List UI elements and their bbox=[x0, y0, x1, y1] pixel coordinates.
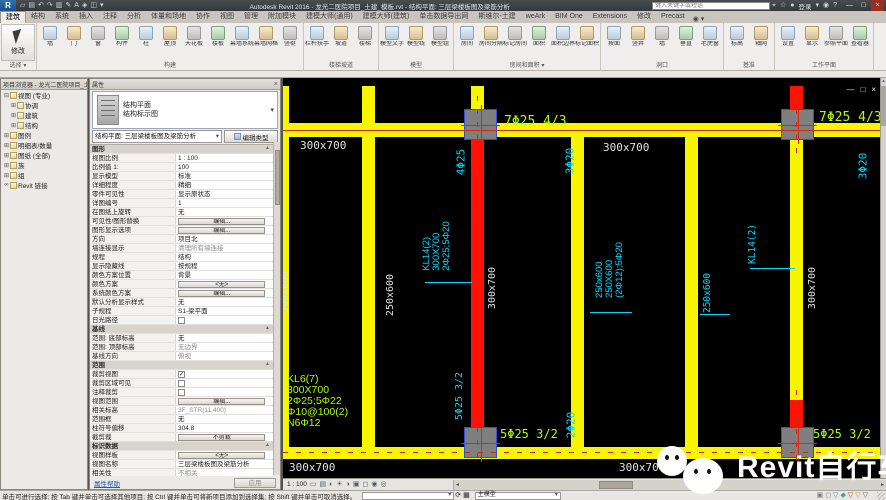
ribbon-button-窗[interactable]: 窗 bbox=[86, 24, 110, 61]
ribbon-button-竖井[interactable]: 竖井 bbox=[626, 24, 650, 61]
minimize-icon[interactable]: — bbox=[843, 0, 856, 11]
ribbon-button-参照平面[interactable]: 参照平面 bbox=[824, 24, 848, 61]
beam[interactable] bbox=[790, 140, 803, 400]
status-mid-icons: ⟳▦ bbox=[454, 491, 471, 500]
tool-icon bbox=[433, 26, 447, 40]
tab-单击数据导出网[interactable]: 单击数据导出网 bbox=[414, 11, 473, 23]
property-row-零件可见性[interactable]: 零件可见性显示原状态 bbox=[90, 190, 273, 199]
cad-label: 3Φ20 bbox=[564, 148, 575, 175]
vertical-scrollbar[interactable]: ▲ bbox=[880, 78, 886, 478]
property-row-相关标高[interactable]: 相关标高3F_STR(11.400) bbox=[90, 406, 273, 415]
tab-视图[interactable]: 视图 bbox=[215, 11, 239, 23]
tree-item-icon bbox=[10, 182, 17, 189]
tree-item-图例[interactable]: ⊞图例 bbox=[1, 130, 87, 140]
type-name-label: 结构标示图 bbox=[123, 110, 158, 119]
close-icon[interactable]: × bbox=[871, 0, 884, 11]
cad-label: 7Φ25 4/3 bbox=[504, 115, 567, 129]
tool-icon bbox=[679, 26, 693, 40]
property-row-颜色方案[interactable]: 颜色方案<无> bbox=[90, 280, 273, 289]
tab-结构[interactable]: 结构 bbox=[26, 11, 50, 23]
restore-icon[interactable]: □ bbox=[857, 0, 870, 11]
property-row-裁剪视图[interactable]: 裁剪视图✓ bbox=[90, 370, 273, 379]
section-header-标识数据[interactable]: 标识数据▲ bbox=[90, 442, 273, 451]
status-hint-text: 单击可进行选择; 按 Tab 键并单击可选择其他项目; 按 Ctrl 键并单击可… bbox=[0, 491, 356, 500]
property-row-视图样板[interactable]: 视图样板<无> bbox=[90, 451, 273, 460]
sign-in-icon[interactable]: ● bbox=[790, 2, 794, 9]
edit-type-icon bbox=[234, 133, 241, 140]
design-options-combo[interactable]: 主模型▾ bbox=[475, 492, 561, 500]
property-row-范围: 底部标高[interactable]: 范围: 底部标高无 bbox=[90, 334, 273, 343]
cad-label: 3Φ20 bbox=[857, 153, 868, 180]
tool-icon bbox=[556, 26, 570, 40]
grid-line bbox=[283, 130, 880, 131]
tool-icon bbox=[385, 26, 399, 40]
tree-item-icon bbox=[10, 132, 17, 139]
tab-管理[interactable]: 管理 bbox=[239, 11, 263, 23]
exchange-icon[interactable]: ◉ bbox=[823, 2, 829, 9]
property-row-方向[interactable]: 方向项目北 bbox=[90, 235, 273, 244]
cad-label: 250x600 bbox=[386, 274, 396, 316]
reveal-hidden-icon[interactable]: ◎ bbox=[380, 479, 386, 490]
options-bar bbox=[0, 71, 886, 78]
section-icon[interactable]: ◫ bbox=[90, 0, 97, 11]
panel-label: 楼梯坡道 bbox=[304, 61, 378, 71]
titlebar-icons-2: ▾◉? bbox=[813, 0, 839, 11]
property-button[interactable]: 编辑... bbox=[178, 218, 265, 225]
help-search-input[interactable]: 键入关键字或短语 bbox=[652, 2, 770, 10]
ribbon-button-查看器[interactable]: 查看器 bbox=[848, 24, 872, 61]
cad-label: 4Φ25 bbox=[455, 149, 466, 176]
cad-label: 300x700 bbox=[300, 140, 346, 151]
ribbon-button-墙[interactable]: 墙 bbox=[650, 24, 674, 61]
expander-icon: ⊞ bbox=[3, 132, 10, 139]
property-button[interactable]: <无> bbox=[178, 452, 265, 459]
type-preview-image bbox=[97, 95, 119, 125]
ribbon-button-轴网[interactable]: 轴网 bbox=[749, 24, 773, 61]
column[interactable] bbox=[464, 109, 497, 140]
show-crop-icon[interactable]: ◻ bbox=[363, 479, 369, 490]
detail-level-icon[interactable]: ▤ bbox=[320, 479, 327, 490]
tab-斯维尔-土建[interactable]: 斯维尔-土建 bbox=[473, 11, 520, 23]
tab-修改[interactable]: 修改 bbox=[632, 11, 656, 23]
cad-label: 300x700 bbox=[289, 462, 335, 473]
property-row-日光路径[interactable]: 日光路径 bbox=[90, 316, 273, 325]
open-icon[interactable]: ▱ bbox=[20, 0, 25, 11]
ribbon-panel-基准: 标高轴网基准 bbox=[724, 23, 775, 71]
edit-type-button[interactable]: 编辑类型 bbox=[224, 130, 278, 143]
expander-icon: ⊞ bbox=[10, 112, 17, 119]
view-restore-icon[interactable]: □ bbox=[860, 85, 865, 94]
properties-scrollbar[interactable] bbox=[273, 142, 280, 475]
property-button[interactable]: 不剪裁 bbox=[178, 434, 265, 441]
main-area: 项目浏览器 - 龙光二医院项目_土建_模板.rvt × ⊟视图 (专业)⊞协调⊞… bbox=[0, 78, 886, 490]
ribbon-button-面积[interactable]: 面积 bbox=[527, 24, 551, 61]
ribbon-button-构件[interactable]: 构件 bbox=[110, 24, 134, 61]
view-close-icon[interactable]: × bbox=[871, 85, 876, 94]
panel-label: 模型 bbox=[379, 61, 453, 71]
tool-icon bbox=[334, 26, 348, 40]
tab-Extensions[interactable]: Extensions bbox=[588, 11, 632, 23]
tree-item-Revit 链接[interactable]: ∞Revit 链接 bbox=[1, 180, 87, 190]
tool-icon bbox=[829, 26, 843, 40]
beam[interactable] bbox=[685, 137, 698, 459]
account-caret-icon[interactable]: ▾ bbox=[815, 2, 819, 9]
tool-icon bbox=[508, 26, 522, 40]
revit-window: R ▱▤↶↷▥✎A◈◫▾ Autodesk Revit 2016 - 龙光二医院… bbox=[0, 0, 886, 500]
property-row-子规程[interactable]: 子规程S1-梁平面 bbox=[90, 307, 273, 316]
grid-line bbox=[796, 96, 797, 156]
select-pinned-icon[interactable]: ▽ bbox=[855, 491, 860, 500]
expander-icon: ⊞ bbox=[10, 122, 17, 129]
project-browser-tree: ⊟视图 (专业)⊞协调⊞建筑⊞结构⊞图例⊞明细表/数量⊞图纸 (全部)⊞族⊞组∞… bbox=[1, 90, 87, 190]
cad-label: 5Φ25 3/2 bbox=[813, 428, 871, 440]
checkbox[interactable] bbox=[178, 317, 185, 324]
leader-line bbox=[750, 268, 795, 269]
tree-item-icon bbox=[10, 172, 17, 179]
property-row-范围框[interactable]: 范围框无 bbox=[90, 415, 273, 424]
cad-label: 300x700 bbox=[603, 142, 649, 153]
ribbon-button-竖梃[interactable]: 竖梃 bbox=[278, 24, 302, 61]
property-row-截剪裁[interactable]: 截剪裁不剪裁 bbox=[90, 433, 273, 442]
cad-label: 7Φ25 4/3 bbox=[819, 111, 880, 125]
filter-icon[interactable]: ▽ bbox=[863, 491, 868, 500]
tool-icon bbox=[187, 26, 201, 40]
tab-建模大师(通用)[interactable]: 建模大师(通用) bbox=[301, 11, 358, 23]
scroll-left-icon[interactable]: ◄ bbox=[455, 480, 460, 490]
worksets-icon[interactable]: ⟳ bbox=[455, 492, 461, 499]
ribbon-button-模型文字[interactable]: 模型文字 bbox=[380, 24, 404, 61]
ribbon-button-天花板[interactable]: 天花板 bbox=[182, 24, 206, 61]
properties-header[interactable]: 属性 × bbox=[90, 79, 280, 90]
ribbon-button-屋顶[interactable]: 屋顶 bbox=[158, 24, 182, 61]
search-binoculars-icon[interactable]: ⌖ bbox=[772, 2, 776, 9]
tool-icon bbox=[460, 26, 474, 40]
section-header-图形[interactable]: 图形▲ bbox=[90, 145, 273, 154]
checkbox[interactable] bbox=[178, 389, 185, 396]
expander-icon: ⊞ bbox=[3, 162, 10, 169]
sign-in-label[interactable]: 登录 bbox=[798, 1, 811, 11]
tool-icon bbox=[211, 26, 225, 40]
hide-elements-icon[interactable]: ◉ bbox=[371, 479, 377, 490]
tab-注释[interactable]: 注释 bbox=[98, 11, 122, 23]
leader-line bbox=[700, 314, 730, 315]
properties-help-link[interactable]: 属性帮助 bbox=[94, 478, 120, 488]
panel-label: 洞口 bbox=[601, 61, 723, 71]
tree-item-icon bbox=[17, 122, 24, 129]
cad-label: KL14(2) bbox=[748, 224, 758, 264]
expander-icon: ∞ bbox=[3, 182, 10, 188]
ribbon-button-模型线[interactable]: 模型线 bbox=[404, 24, 428, 61]
cad-label: KL14(2)300X7002Φ25;5Φ20 bbox=[422, 221, 452, 271]
tab-BIM One[interactable]: BIM One bbox=[550, 11, 588, 23]
ribbon-panel-工作平面: 设置显示参照平面查看器工作平面 bbox=[775, 23, 874, 71]
section-header-范围[interactable]: 范围▲ bbox=[90, 361, 273, 370]
cad-label: 300x700 bbox=[808, 267, 818, 309]
tool-icon bbox=[67, 26, 81, 40]
property-row-视图比例[interactable]: 视图比例1 : 100 bbox=[90, 154, 273, 163]
panel-label: 房间和面积 ▾ bbox=[454, 61, 600, 71]
modify-button[interactable]: 修改 bbox=[1, 24, 35, 61]
property-row-图形显示选项[interactable]: 图形显示选项编辑... bbox=[90, 226, 273, 235]
select-links-icon[interactable]: ◆ bbox=[840, 491, 845, 500]
3d-view-icon[interactable]: ◈ bbox=[82, 0, 87, 11]
modify-pencil-icon[interactable]: ✎ bbox=[65, 0, 71, 11]
worksets-combo[interactable]: ▾ bbox=[362, 492, 454, 500]
property-row-系统颜色方案[interactable]: 系统颜色方案编辑... bbox=[90, 289, 273, 298]
ribbon: 修改选择 ▾墙门窗构件柱屋顶天花板楼板幕墙系统幕墙网格竖梃构建栏杆扶手坡道楼梯楼… bbox=[0, 23, 886, 71]
edit-type-label: 编辑类型 bbox=[243, 132, 269, 142]
editable-only-icon[interactable]: ▣ bbox=[817, 491, 824, 500]
property-row-在图纸上旋转[interactable]: 在图纸上旋转无 bbox=[90, 208, 273, 217]
select-underlay-icon[interactable]: ▽ bbox=[848, 491, 853, 500]
property-row-视图名称[interactable]: 视图名称三层梁楼板图及梁筋分析 bbox=[90, 460, 273, 469]
ribbon-button-垂直[interactable]: 垂直 bbox=[674, 24, 698, 61]
checkbox[interactable] bbox=[178, 380, 185, 387]
ribbon-button-栏杆扶手[interactable]: 栏杆扶手 bbox=[305, 24, 329, 61]
grid-line bbox=[477, 414, 478, 466]
type-selector[interactable]: 结构平面 结构标示图 ▾ bbox=[92, 91, 278, 129]
tool-icon bbox=[607, 26, 621, 40]
ribbon-button-坡道[interactable]: 坡道 bbox=[329, 24, 353, 61]
ribbon-button-房间[interactable]: 房间 bbox=[455, 24, 479, 61]
ribbon-button-老虎窗[interactable]: 老虎窗 bbox=[698, 24, 722, 61]
tree-item-协调[interactable]: ⊞协调 bbox=[1, 100, 87, 110]
property-row-可见性/图形替换[interactable]: 可见性/图形替换编辑... bbox=[90, 217, 273, 226]
tab-Precast[interactable]: Precast bbox=[656, 11, 690, 23]
wechat-icon-small bbox=[683, 458, 723, 494]
ribbon-button-门[interactable]: 门 bbox=[62, 24, 86, 61]
property-row-详图编号[interactable]: 详图编号1 bbox=[90, 199, 273, 208]
property-row-显示模型[interactable]: 显示模型标准 bbox=[90, 172, 273, 181]
ribbon-button-楼板[interactable]: 楼板 bbox=[206, 24, 230, 61]
quick-access-toolbar: ▱▤↶↷▥✎A◈◫▾ bbox=[16, 0, 107, 11]
ribbon-button-标高[interactable]: 标高 bbox=[725, 24, 749, 61]
ribbon-button-标记面积[interactable]: 标记面积 bbox=[575, 24, 599, 61]
property-row-注释裁剪[interactable]: 注释裁剪 bbox=[90, 388, 273, 397]
close-icon[interactable]: × bbox=[274, 81, 278, 88]
tab-体量和场地[interactable]: 体量和场地 bbox=[146, 11, 191, 23]
project-browser-panel: 项目浏览器 - 龙光二医院项目_土建_模板.rvt × ⊟视图 (专业)⊞协调⊞… bbox=[0, 78, 88, 490]
leader-line bbox=[425, 282, 472, 283]
undo-icon[interactable]: ↶ bbox=[38, 0, 44, 11]
property-button[interactable]: <无> bbox=[178, 281, 265, 288]
property-row-墙连接显示[interactable]: 墙连接显示清理所有墙连接 bbox=[90, 244, 273, 253]
ribbon-button-幕墙网格[interactable]: 幕墙网格 bbox=[254, 24, 278, 61]
tree-item-图纸 (全部)[interactable]: ⊞图纸 (全部) bbox=[1, 150, 87, 160]
crop-view-icon[interactable]: ▣ bbox=[353, 479, 360, 490]
view-window-controls: —□× bbox=[846, 85, 876, 94]
cad-label: 300x700 bbox=[488, 267, 498, 309]
sun-path-icon[interactable]: ☀ bbox=[336, 479, 342, 490]
tool-icon bbox=[730, 26, 744, 40]
property-row-详细程度[interactable]: 详细程度精细 bbox=[90, 181, 273, 190]
tool-icon bbox=[115, 26, 129, 40]
ribbon-panel-选择 ▾: 修改选择 ▾ bbox=[0, 23, 37, 71]
panel-label: 构建 bbox=[37, 61, 303, 71]
text-icon[interactable]: A bbox=[74, 0, 79, 11]
tab-weArk[interactable]: weArk bbox=[521, 11, 550, 23]
property-row-柱符号偏移[interactable]: 柱符号偏移304.8 bbox=[90, 424, 273, 433]
scrollbar-thumb[interactable] bbox=[599, 481, 633, 489]
tab-建筑[interactable]: 建筑 bbox=[0, 11, 26, 23]
tool-icon bbox=[631, 26, 645, 40]
ribbon-button-楼梯[interactable]: 楼梯 bbox=[353, 24, 377, 61]
panel-label: 选择 ▾ bbox=[0, 61, 36, 71]
property-row-颜色方案位置[interactable]: 颜色方案位置背景 bbox=[90, 271, 273, 280]
tab-插入[interactable]: 插入 bbox=[74, 11, 98, 23]
project-browser-header[interactable]: 项目浏览器 - 龙光二医院项目_土建_模板.rvt × bbox=[1, 79, 87, 90]
window-buttons: —□× bbox=[843, 0, 884, 11]
property-button[interactable]: 编辑... bbox=[178, 290, 265, 297]
cursor-icon bbox=[12, 29, 24, 44]
ribbon-button-幕墙系统[interactable]: 幕墙系统 bbox=[230, 24, 254, 61]
cad-label: 250x600250X600(2Φ12);5Φ20 bbox=[595, 242, 625, 298]
tab-options-icon[interactable]: ◉ ▾ bbox=[693, 15, 705, 23]
ribbon-tab-bar: 建筑结构系统插入注释分析体量和场地协作视图管理附加模块建模大师(通用)建模大师(… bbox=[0, 11, 886, 23]
tool-icon bbox=[283, 26, 297, 40]
beam-selected[interactable] bbox=[471, 140, 484, 428]
tool-icon bbox=[484, 26, 498, 40]
cad-label: 300x600 bbox=[283, 271, 291, 313]
section-header-基线[interactable]: 基线▲ bbox=[90, 325, 273, 334]
tool-icon bbox=[655, 26, 669, 40]
column[interactable] bbox=[781, 109, 814, 140]
tab-分析[interactable]: 分析 bbox=[122, 11, 146, 23]
tab-协作[interactable]: 协作 bbox=[191, 11, 215, 23]
ribbon-button-模型组[interactable]: 模型组 bbox=[428, 24, 452, 61]
design-options-icon[interactable]: ▦ bbox=[463, 492, 470, 499]
cad-label: 250x600 bbox=[703, 273, 713, 313]
property-row-显示隐藏线[interactable]: 显示隐藏线按规程 bbox=[90, 262, 273, 271]
property-row-裁剪区域可见[interactable]: 裁剪区域可见 bbox=[90, 379, 273, 388]
ribbon-button-柱[interactable]: 柱 bbox=[134, 24, 158, 61]
tool-icon bbox=[703, 26, 717, 40]
apply-button[interactable]: 应用 bbox=[234, 478, 276, 488]
scale-icon[interactable]: ▭ bbox=[310, 479, 317, 490]
cad-label: 5Φ25 3/2 bbox=[500, 428, 558, 440]
view-scale-button[interactable]: 1 : 100 bbox=[287, 481, 307, 488]
tab-系统[interactable]: 系统 bbox=[50, 11, 74, 23]
expander-icon: ⊞ bbox=[3, 152, 10, 159]
ribbon-button-设置[interactable]: 设置 bbox=[776, 24, 800, 61]
view-minimize-icon[interactable]: — bbox=[846, 85, 854, 94]
view-canvas[interactable]: 300x700300x700300x700300x700300x700300x7… bbox=[283, 78, 880, 478]
tree-item-icon bbox=[17, 112, 24, 119]
shadows-icon[interactable]: ◑ bbox=[346, 479, 350, 490]
exclude-options-filter-icon[interactable]: ▽ bbox=[833, 491, 838, 500]
expander-icon: ⊞ bbox=[10, 102, 17, 109]
expander-icon: ⊞ bbox=[3, 142, 10, 149]
title-bar: R ▱▤↶↷▥✎A◈◫▾ Autodesk Revit 2016 - 龙光二医院… bbox=[0, 0, 886, 11]
element-selector-combo[interactable]: 结构平面: 三层梁楼板图及梁筋分析 ▾ bbox=[92, 130, 222, 143]
ribbon-button-按面[interactable]: 按面 bbox=[602, 24, 626, 61]
tool-icon bbox=[358, 26, 372, 40]
cad-label: 5Φ25 3/2 bbox=[455, 372, 465, 420]
tab-附加模块[interactable]: 附加模块 bbox=[263, 11, 301, 23]
property-row-视图范围[interactable]: 视图范围编辑... bbox=[90, 397, 273, 406]
tool-icon bbox=[139, 26, 153, 40]
help-icon[interactable]: ? bbox=[833, 2, 837, 9]
favorites-star-icon[interactable]: ☆ bbox=[780, 2, 786, 9]
ribbon-panel-房间和面积 ▾: 房间房间分隔标记房间面积面积边界标记面积房间和面积 ▾ bbox=[454, 23, 601, 71]
property-row-范围: 顶部标高[interactable]: 范围: 顶部标高无边界 bbox=[90, 343, 273, 352]
tree-item-视图 (专业)[interactable]: ⊟视图 (专业) bbox=[1, 90, 87, 100]
expander-icon: ⊞ bbox=[3, 172, 10, 179]
property-row-相关性[interactable]: 相关性不相关 bbox=[90, 469, 273, 476]
ribbon-button-显示[interactable]: 显示 bbox=[800, 24, 824, 61]
tool-icon bbox=[532, 26, 546, 40]
tree-item-icon bbox=[10, 142, 17, 149]
property-row-规程[interactable]: 规程结构 bbox=[90, 253, 273, 262]
status-bar: 单击可进行选择; 按 Tab 键并单击可选择其他项目; 按 Ctrl 键并单击可… bbox=[0, 490, 886, 500]
ribbon-button-面积边界[interactable]: 面积边界 bbox=[551, 24, 575, 61]
view-control-bar: 1 : 100 ▭▤◐☀◑▣◻◉◎ bbox=[283, 479, 453, 490]
tree-item-icon bbox=[10, 162, 17, 169]
ribbon-button-墙[interactable]: 墙 bbox=[38, 24, 62, 61]
visual-style-icon[interactable]: ◐ bbox=[329, 479, 333, 490]
column[interactable] bbox=[464, 427, 497, 458]
print-icon[interactable]: ▥ bbox=[56, 0, 63, 11]
chevron-down-icon: ▾ bbox=[216, 131, 219, 142]
tab-建模大师(建筑)[interactable]: 建模大师(建筑) bbox=[358, 11, 415, 23]
redo-icon[interactable]: ↷ bbox=[47, 0, 53, 11]
tree-item-组[interactable]: ⊞组 bbox=[1, 170, 87, 180]
expander-icon: ⊟ bbox=[3, 92, 10, 99]
drawing-area: 300x700300x700300x700300x700300x700300x7… bbox=[283, 78, 886, 490]
status-right-icons: ▣◻▽◆▽▽▽ bbox=[816, 491, 877, 500]
ribbon-panel-洞口: 按面竖井墙垂直老虎窗洞口 bbox=[601, 23, 724, 71]
save-icon[interactable]: ▤ bbox=[28, 0, 35, 11]
tool-icon bbox=[409, 26, 423, 40]
tree-item-结构[interactable]: ⊞结构 bbox=[1, 120, 87, 130]
qat-caret-icon[interactable]: ▾ bbox=[100, 0, 104, 11]
watermark-text: Revit自行车 bbox=[737, 442, 886, 486]
tool-icon bbox=[853, 26, 867, 40]
tool-icon bbox=[43, 26, 57, 40]
panel-label: 工作平面 bbox=[775, 61, 873, 71]
checkbox[interactable]: ✓ bbox=[178, 371, 185, 378]
beam[interactable] bbox=[362, 86, 375, 459]
cad-label: KL6(7)300X7002Φ25;5Φ22Φ10@100(2)N6Φ12 bbox=[287, 374, 348, 429]
tool-icon bbox=[235, 26, 249, 40]
tool-icon bbox=[754, 26, 768, 40]
leader-line bbox=[590, 312, 632, 313]
chevron-down-icon[interactable]: ▾ bbox=[270, 106, 274, 114]
property-row-比例值 1:[interactable]: 比例值 1:100 bbox=[90, 163, 273, 172]
beam[interactable] bbox=[571, 137, 584, 459]
revit-app-menu-button[interactable]: R bbox=[0, 0, 16, 11]
cad-label: 2Φ20 bbox=[565, 412, 576, 439]
tree-item-明细表/数量[interactable]: ⊞明细表/数量 bbox=[1, 140, 87, 150]
resize-grip[interactable] bbox=[877, 492, 885, 500]
grid-line bbox=[477, 96, 478, 156]
window-title: Autodesk Revit 2016 - 龙光二医院项目_土建_模板.rvt … bbox=[107, 1, 652, 11]
ribbon-button-标记房间[interactable]: 标记房间 bbox=[503, 24, 527, 61]
tree-item-icon bbox=[10, 152, 17, 159]
tree-item-建筑[interactable]: ⊞建筑 bbox=[1, 110, 87, 120]
ribbon-button-房间分隔[interactable]: 房间分隔 bbox=[479, 24, 503, 61]
property-button[interactable]: 编辑... bbox=[178, 227, 265, 234]
tool-icon bbox=[259, 26, 273, 40]
property-row-默认分析显示样式[interactable]: 默认分析显示样式无 bbox=[90, 298, 273, 307]
property-button[interactable]: 编辑... bbox=[178, 398, 265, 405]
press-drag-icon[interactable]: ◻ bbox=[825, 491, 831, 500]
panel-label: 基准 bbox=[724, 61, 774, 71]
tree-item-族[interactable]: ⊞族 bbox=[1, 160, 87, 170]
property-row-基线方向[interactable]: 基线方向俯视 bbox=[90, 352, 273, 361]
tool-icon bbox=[580, 26, 594, 40]
tree-item-icon bbox=[17, 102, 24, 109]
